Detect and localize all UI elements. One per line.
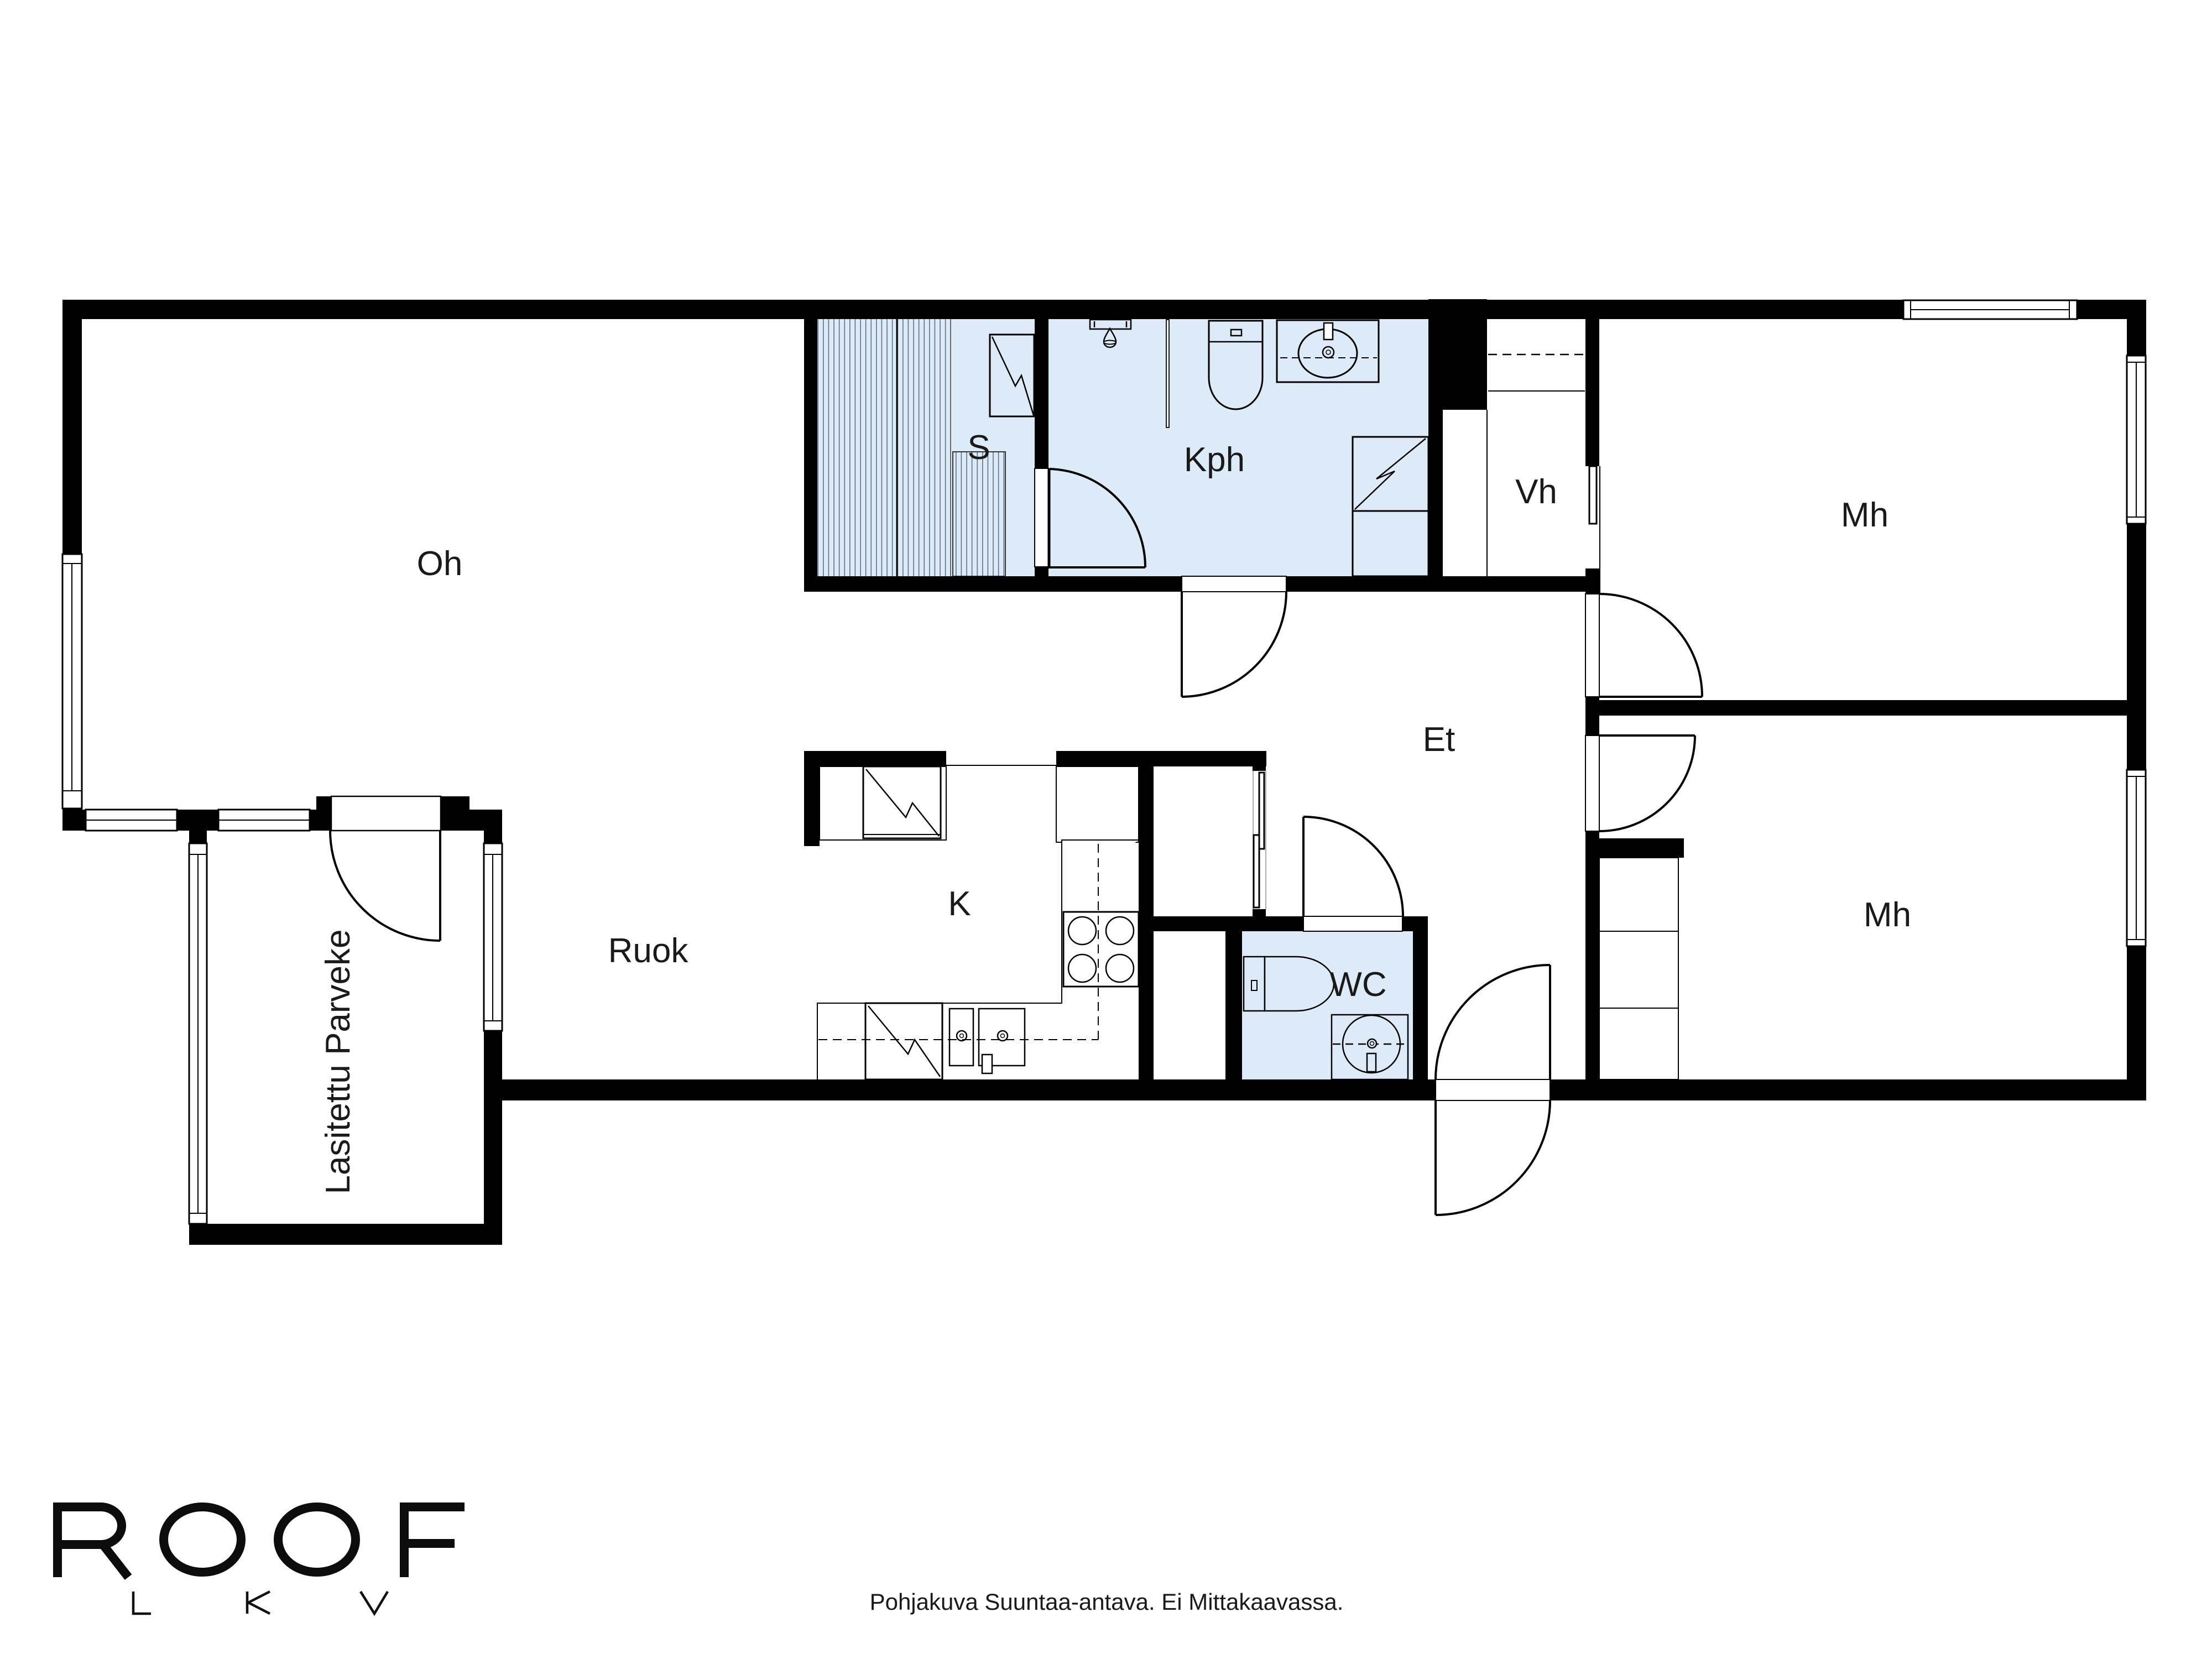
svg-text:S: S: [967, 429, 990, 467]
svg-text:WC: WC: [1329, 966, 1386, 1004]
svg-text:Kph: Kph: [1184, 441, 1245, 479]
svg-text:Ruok: Ruok: [608, 932, 689, 970]
svg-text:K: K: [948, 885, 971, 923]
svg-text:Mh: Mh: [1864, 896, 1911, 934]
svg-text:Et: Et: [1423, 721, 1455, 759]
svg-text:Lasitettu Parveke: Lasitettu Parveke: [319, 929, 357, 1194]
svg-text:Vh: Vh: [1515, 473, 1557, 511]
svg-text:Mh: Mh: [1841, 496, 1888, 534]
svg-text:Pohjakuva Suuntaa-antava. Ei M: Pohjakuva Suuntaa-antava. Ei Mittakaavas…: [870, 1589, 1344, 1615]
svg-text:Oh: Oh: [417, 545, 463, 583]
